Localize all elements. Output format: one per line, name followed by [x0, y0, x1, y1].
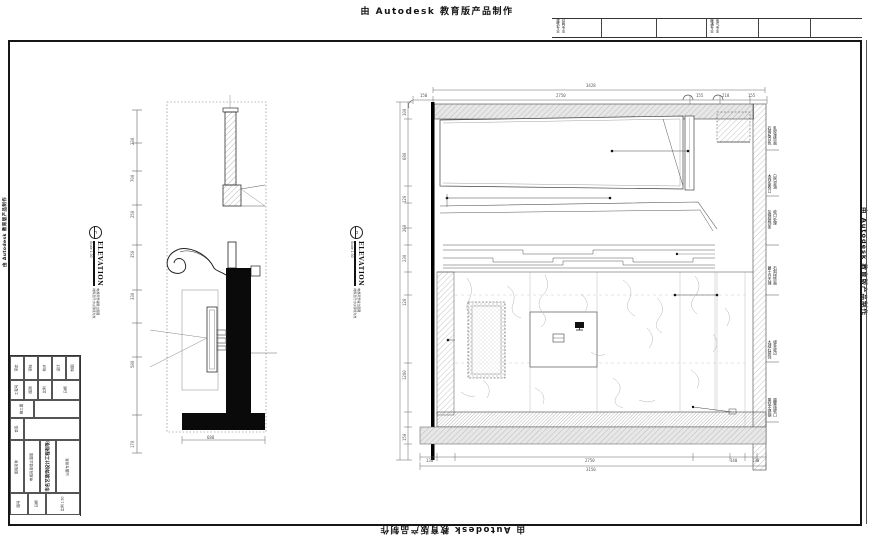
elevation-note: 材料及尺寸以现场为准: [92, 288, 96, 318]
dimension-label: 680: [403, 153, 407, 160]
dimension-label: 120: [403, 299, 407, 306]
title-block-cell-text: 图别: [29, 387, 33, 394]
elevation-note: 电视背景墙侧立面图: [96, 288, 100, 318]
signature-cell: 暖通专业 电气专业: [710, 19, 719, 35]
material-callout: 大理石装饰 线条收边: [768, 340, 777, 359]
title-block-cell-text: 施工图: [20, 404, 24, 415]
signature-cell: 建筑专业 结构专业: [556, 19, 565, 35]
title-block-cell-text: 会签: [15, 426, 19, 433]
dimension-label: 3150: [586, 468, 596, 472]
title-block-cell-text: 广州市名艺装饰设计工程有限公司: [46, 440, 51, 493]
section-mark-icon: D: [350, 226, 363, 239]
title-block-cell-text: 日期: [35, 501, 39, 508]
title-block-cell-text: 电视背景墙立面图: [30, 453, 34, 481]
title-block-cell: 日期: [52, 380, 80, 400]
title-block-cells: 审定 审核 校对 设计 制图 工程号 图别: [10, 355, 80, 515]
dimension-label: 330: [131, 293, 135, 300]
title-block-cell-text: 审核: [29, 365, 33, 372]
section-mark-letter: D: [354, 231, 359, 234]
title-block-cell-text: 设计: [57, 365, 61, 372]
dimension-label: 170: [131, 441, 135, 448]
dimension-label: 230: [131, 138, 135, 145]
dimension-label: 218: [722, 94, 729, 98]
material-callout-text: 大理石装饰: [768, 340, 772, 359]
material-callout-text: 爵士白大理: [768, 266, 772, 285]
title-block-cell: 广州市名艺装饰设计工程有限公司: [40, 440, 56, 493]
title-block-cell: 审定: [10, 356, 24, 380]
title-block-cell: 工程号: [10, 380, 24, 400]
elevation-label-right: D ELEVATION Scale 1:30 电视背景墙立面图 材料及尺寸以现场…: [348, 226, 365, 330]
material-callout: 木线条收口 白色混油: [768, 174, 777, 193]
dimension-label: 3428: [586, 84, 596, 88]
material-callout-text: 灰镜装饰条: [768, 210, 772, 229]
signature-cell-text: 电气专业: [716, 19, 720, 35]
title-block-cell: 图号: [10, 493, 28, 515]
signature-cell-text: 暖通专业: [710, 19, 714, 35]
title-block-cell: 图纸名称: [10, 440, 24, 493]
elevation-note: 材料及尺寸以现场为准: [353, 288, 357, 318]
title-block-cell-text: 审定: [15, 365, 19, 372]
strip-divider: [810, 19, 811, 37]
material-callout-text: 黑钛不锈钢: [768, 398, 772, 417]
dimension-label: 155: [748, 94, 755, 98]
title-block-cell: 制图: [66, 356, 80, 380]
title-block-cell-text: 出图专用章: [66, 458, 70, 476]
title-block-cell-text: 校对: [43, 365, 47, 372]
material-callout-text: 线条收边: [773, 340, 777, 359]
dimension-label: 580: [131, 361, 135, 368]
dimension-label: 130: [752, 459, 759, 463]
dimension-label: 250: [131, 211, 135, 218]
title-block-cell-text: 图纸名称: [15, 460, 19, 474]
title-block-cell: 审核: [24, 356, 38, 380]
title-block-cell-text: 工程号: [15, 385, 19, 396]
dimension-label: 1200: [403, 370, 407, 380]
material-callout-text: 踢脚线收口: [773, 398, 777, 417]
material-callout: 石膏板白色 乳胶漆饰面: [768, 126, 777, 145]
dimension-label: 120: [403, 196, 407, 203]
signature-cell-text: 结构专业: [562, 19, 566, 35]
material-callout-text: 石斜拼饰面: [773, 266, 777, 285]
elevation-note: 电视背景墙立面图: [357, 288, 361, 318]
title-block-cell-text: 比例: [43, 387, 47, 394]
elevation-title: ELEVATION: [354, 241, 363, 286]
dimension-label: 700: [131, 175, 135, 182]
title-block-cell-text: 日期: [64, 387, 68, 394]
material-callout-text: 白色混油: [773, 174, 777, 193]
dimension-label: 130: [426, 459, 433, 463]
signature-cell-text: 建筑专业: [556, 19, 560, 35]
dimension-label: 150: [420, 94, 427, 98]
material-callout: 爵士白大理 石斜拼饰面: [768, 266, 777, 285]
dimension-label: 350: [131, 251, 135, 258]
material-callout-text: 木线条收口: [768, 174, 772, 193]
title-block-cell: 施工图: [10, 400, 34, 418]
material-callout-text: 石膏板白色: [768, 126, 772, 145]
elevation-title: ELEVATION: [93, 241, 102, 286]
material-callout: 灰镜装饰条 收口处理: [768, 210, 777, 229]
dimension-label: 150: [403, 434, 407, 441]
dimension-label: 260: [403, 225, 407, 232]
title-block-cell: 日期: [28, 493, 46, 515]
material-callout-text: 收口处理: [773, 210, 777, 229]
drawing-frame-outer-line: [866, 40, 867, 524]
cad-plot-sheet: 由 Autodesk 教育版产品制作 由 Autodesk 教育版产品制作 由 …: [0, 0, 878, 540]
right-elevation-drawing: [395, 82, 805, 482]
title-block-cell: 会签: [10, 418, 24, 440]
title-block-cell: 比例 1:30: [46, 493, 80, 515]
section-mark-icon: C: [89, 226, 102, 239]
title-block-cell: 出图专用章: [56, 440, 80, 493]
dimension-label: 100: [403, 109, 407, 116]
title-block-cell: 图别: [24, 380, 38, 400]
dimension-label: 2750: [585, 459, 595, 463]
autodesk-stamp-top: 由 Autodesk 教育版产品制作: [360, 4, 513, 17]
material-callout-text: 乳胶漆饰面: [773, 126, 777, 145]
section-mark-letter: C: [93, 231, 98, 234]
title-block-cell: [34, 400, 80, 418]
elevation-scale: Scale 1:30: [350, 241, 355, 286]
title-block-cell: 设计: [52, 356, 66, 380]
signature-strip: [552, 18, 862, 38]
strip-divider: [601, 19, 602, 37]
strip-divider: [706, 19, 707, 37]
elevation-label-left: C ELEVATION Scale 1:30 电视背景墙侧立面图 材料及尺寸以现…: [87, 226, 104, 330]
title-block-cell: [24, 418, 80, 440]
title-block-cell-text: 比例 1:30: [61, 497, 65, 512]
title-block-cell-text: 制图: [71, 365, 75, 372]
dimension-label: 2750: [556, 94, 566, 98]
strip-divider: [656, 19, 657, 37]
dimension-label: 140: [730, 459, 737, 463]
title-block-cell: 电视背景墙立面图: [24, 440, 40, 493]
dimension-label: 230: [403, 255, 407, 262]
material-callout: 黑钛不锈钢 踢脚线收口: [768, 398, 777, 417]
dimension-label: 680: [207, 436, 214, 440]
title-block-cell: 校对: [38, 356, 52, 380]
title-block-cell: 比例: [38, 380, 52, 400]
title-block-cell-text: 图号: [17, 501, 21, 508]
dimension-label: 155: [696, 94, 703, 98]
elevation-scale: Scale 1:30: [89, 241, 94, 286]
strip-divider: [758, 19, 759, 37]
left-elevation-drawing: [130, 95, 345, 465]
